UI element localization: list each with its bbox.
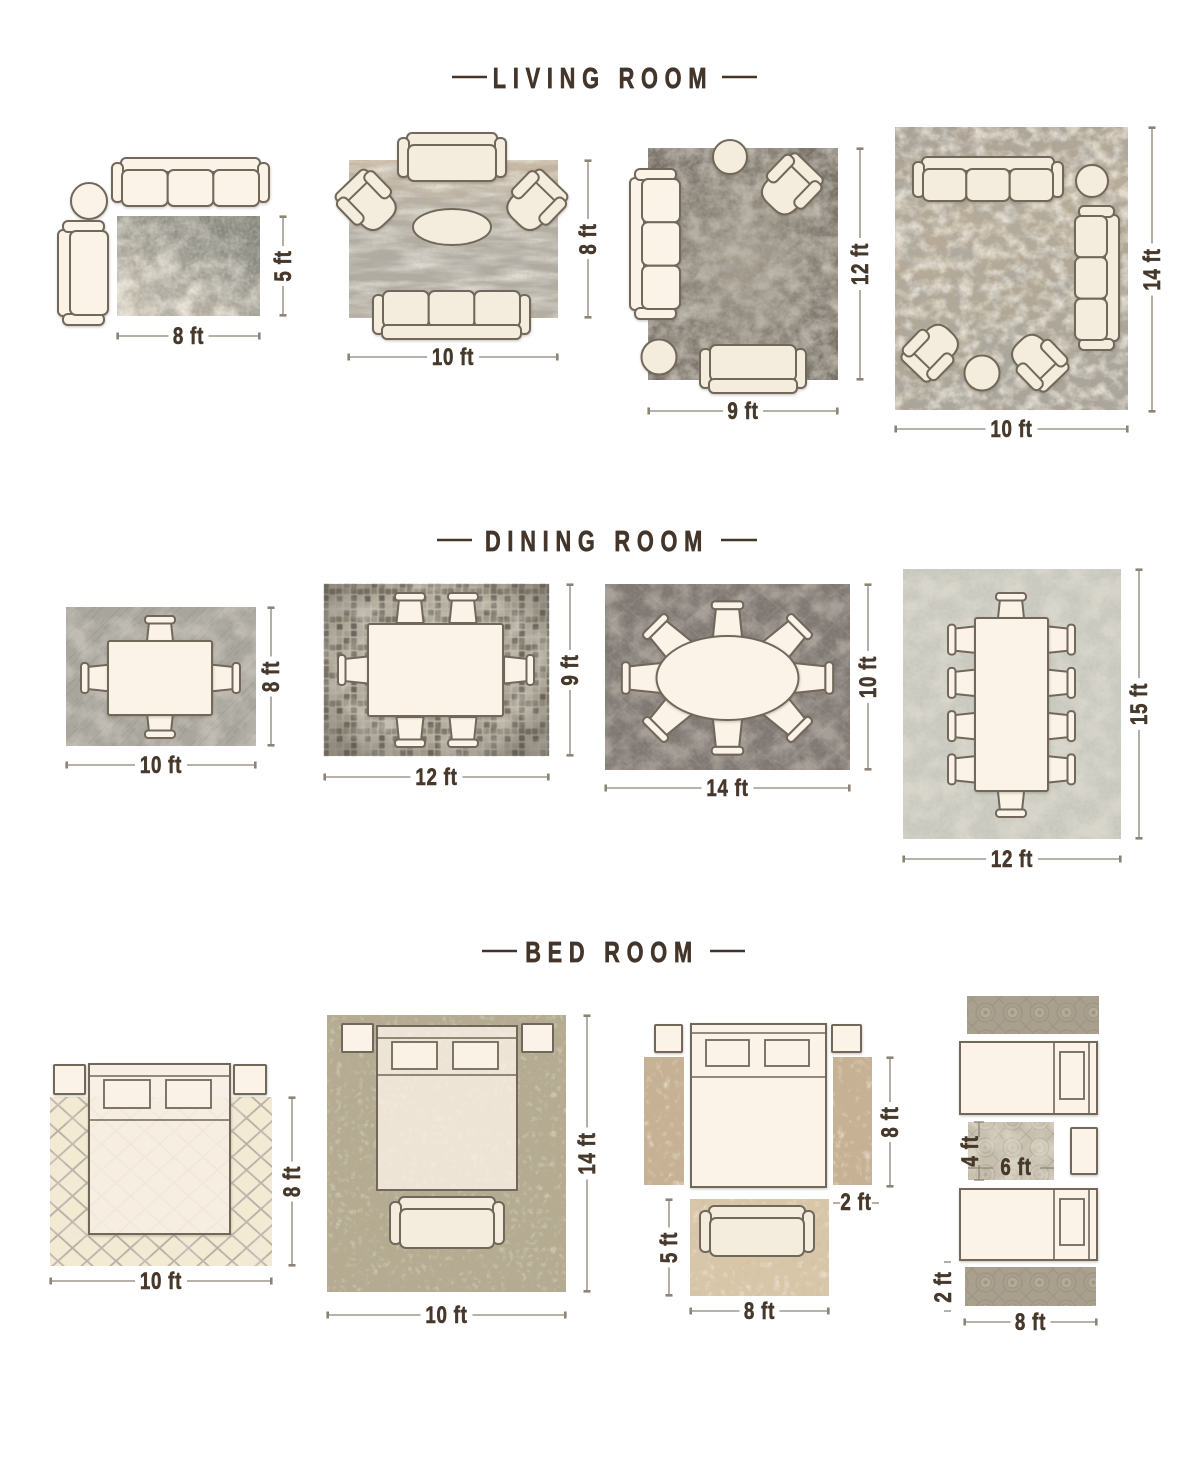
svg-text:4 ft: 4 ft bbox=[957, 1135, 984, 1166]
svg-text:8 ft: 8 ft bbox=[575, 223, 602, 254]
svg-text:10 ft: 10 ft bbox=[140, 1268, 182, 1295]
svg-text:6 ft: 6 ft bbox=[1000, 1154, 1031, 1181]
svg-text:2 ft: 2 ft bbox=[840, 1189, 871, 1216]
svg-text:8 ft: 8 ft bbox=[258, 661, 285, 692]
svg-text:10 ft: 10 ft bbox=[140, 752, 182, 779]
svg-text:14 ft: 14 ft bbox=[574, 1132, 601, 1174]
svg-text:BED ROOM: BED ROOM bbox=[525, 937, 699, 969]
svg-text:8 ft: 8 ft bbox=[279, 1166, 306, 1197]
svg-text:10 ft: 10 ft bbox=[432, 344, 474, 371]
svg-text:9 ft: 9 ft bbox=[557, 654, 584, 685]
svg-text:15 ft: 15 ft bbox=[1126, 683, 1153, 725]
svg-text:2 ft: 2 ft bbox=[930, 1271, 957, 1302]
svg-text:14 ft: 14 ft bbox=[1139, 248, 1166, 290]
svg-text:8 ft: 8 ft bbox=[744, 1298, 775, 1325]
svg-text:10 ft: 10 ft bbox=[990, 416, 1032, 443]
svg-text:9 ft: 9 ft bbox=[727, 398, 758, 425]
svg-text:5 ft: 5 ft bbox=[656, 1232, 683, 1263]
svg-text:12 ft: 12 ft bbox=[991, 846, 1033, 873]
svg-text:8 ft: 8 ft bbox=[877, 1106, 904, 1137]
svg-text:12 ft: 12 ft bbox=[847, 243, 874, 285]
svg-text:8 ft: 8 ft bbox=[173, 323, 204, 350]
svg-text:12 ft: 12 ft bbox=[415, 764, 457, 791]
svg-text:14 ft: 14 ft bbox=[706, 775, 748, 802]
svg-text:5 ft: 5 ft bbox=[270, 250, 297, 281]
svg-text:10 ft: 10 ft bbox=[425, 1302, 467, 1329]
svg-text:8 ft: 8 ft bbox=[1015, 1309, 1046, 1336]
svg-text:DINING ROOM: DINING ROOM bbox=[485, 526, 709, 558]
svg-text:10 ft: 10 ft bbox=[855, 656, 882, 698]
svg-text:LIVING ROOM: LIVING ROOM bbox=[493, 63, 713, 95]
